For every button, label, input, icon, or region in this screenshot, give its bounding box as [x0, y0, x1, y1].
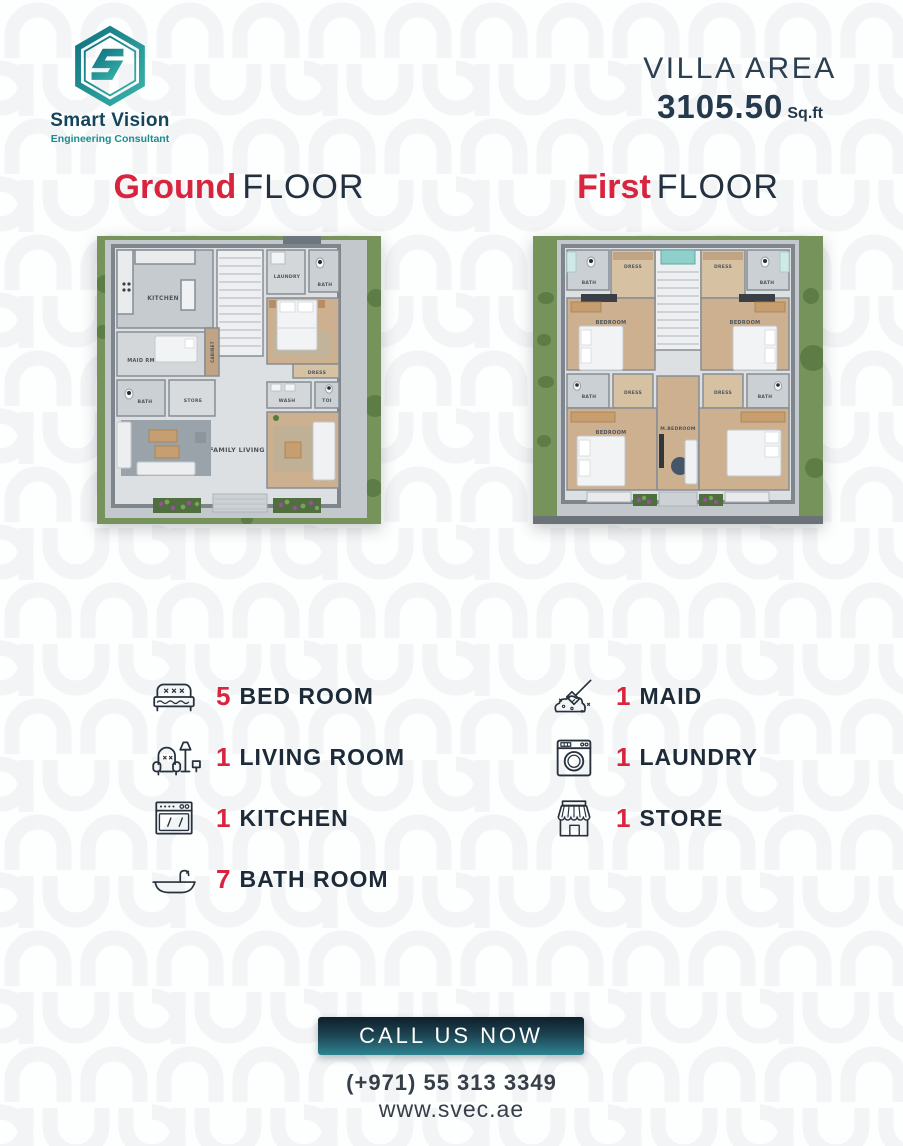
room-label-store: STORE	[184, 398, 203, 404]
ground-floor-heading-rest: FLOOR	[242, 168, 364, 206]
feature-kitchen-label: KITCHEN	[239, 805, 348, 832]
feature-laundry-label: LAUNDRY	[639, 744, 758, 771]
brand-tagline: Engineering Consultant	[40, 133, 180, 145]
phone-number[interactable]: (+971) 55 313 3349	[0, 1070, 903, 1096]
room-label-bath-tl: BATH	[582, 280, 597, 286]
room-label-master-bedroom: M.BEDROOM	[660, 426, 696, 432]
flyer-page: Smart Vision Engineering Consultant VILL…	[0, 0, 903, 1146]
room-label-dress-tl: DRESS	[624, 264, 642, 270]
feature-store-label: STORE	[639, 805, 723, 832]
bath-icon	[138, 859, 210, 901]
feature-kitchen: 1 KITCHEN	[138, 788, 468, 849]
room-label-wash: WASH	[279, 398, 296, 404]
first-floor-heading-rest: FLOOR	[657, 168, 779, 206]
feature-maid: 1 MAID	[538, 666, 868, 727]
room-label-kitchen: KITCHEN	[147, 295, 179, 302]
feature-bed-room-label: BED ROOM	[239, 683, 374, 710]
ground-floor-plan: KITCHEN LAUNDRY BATH	[97, 236, 381, 524]
feature-bed-room: 5 BED ROOM	[138, 666, 468, 727]
room-label-bath-top: BATH	[318, 282, 333, 288]
feature-bath-room-count: 7	[216, 864, 230, 895]
call-us-now-button[interactable]: CALL US NOW	[318, 1017, 584, 1055]
room-label-family-living: FAMILY LIVING	[209, 446, 265, 454]
room-label-dress-ml: DRESS	[624, 390, 642, 396]
feature-living-room-label: LIVING ROOM	[239, 744, 405, 771]
features-right-column: 1 MAID 1 LAUNDRY	[538, 666, 868, 849]
laundry-icon	[538, 736, 610, 780]
villa-area-unit: Sq.ft	[787, 105, 823, 122]
bed-icon	[138, 676, 210, 718]
feature-maid-label: MAID	[639, 683, 702, 710]
maid-icon	[538, 676, 610, 718]
feature-maid-count: 1	[616, 681, 630, 712]
first-floor-heading-accent: First	[577, 168, 651, 206]
room-label-maid: MAID RM	[127, 358, 155, 364]
brand-name: Smart Vision	[40, 110, 180, 132]
hexagon-s-logo-icon	[67, 24, 153, 108]
room-label-dress-mr: DRESS	[714, 390, 732, 396]
room-label-dress: DRESS	[308, 370, 326, 376]
room-label-laundry: LAUNDRY	[274, 274, 301, 280]
feature-store: 1 STORE	[538, 788, 868, 849]
ground-floor-heading-accent: Ground	[114, 168, 237, 206]
room-label-bedroom-bl: BEDROOM	[596, 430, 627, 436]
villa-area-value: 3105.50	[657, 88, 783, 125]
feature-kitchen-count: 1	[216, 803, 230, 834]
feature-bed-room-count: 5	[216, 681, 230, 712]
room-label-bath-ml: BATH	[582, 394, 597, 400]
feature-laundry-count: 1	[616, 742, 630, 773]
feature-bath-room-label: BATH ROOM	[239, 866, 388, 893]
feature-living-room: 1 LIVING ROOM	[138, 727, 468, 788]
ground-floor-heading: GroundFLOOR	[97, 168, 381, 212]
features-left-column: 5 BED ROOM 1 LIVING ROOM	[138, 666, 468, 910]
room-label-cabinet: CABINET	[210, 341, 215, 362]
room-label-bath-tr: BATH	[760, 280, 775, 286]
feature-store-count: 1	[616, 803, 630, 834]
villa-area-label: VILLA AREA	[610, 52, 870, 86]
villa-area-block: VILLA AREA 3105.50Sq.ft	[610, 52, 870, 126]
room-label-bedroom-tr: BEDROOM	[730, 320, 761, 326]
kitchen-icon	[138, 798, 210, 840]
feature-bath-room: 7 BATH ROOM	[138, 849, 468, 910]
room-label-bath-left: BATH	[138, 399, 153, 405]
store-icon	[538, 797, 610, 841]
feature-living-room-count: 1	[216, 742, 230, 773]
first-floor-heading: FirstFLOOR	[533, 168, 823, 212]
first-floor-plan: BATH DRESS BEDROOM DRESS BATH BEDROOM	[533, 236, 823, 524]
feature-laundry: 1 LAUNDRY	[538, 727, 868, 788]
room-label-bath-mr: BATH	[758, 394, 773, 400]
website-link[interactable]: www.svec.ae	[0, 1096, 903, 1123]
living-room-icon	[138, 737, 210, 779]
room-label-toilet: TOI	[322, 398, 332, 404]
room-label-dress-tr: DRESS	[714, 264, 732, 270]
brand-block: Smart Vision Engineering Consultant	[40, 24, 180, 145]
room-label-bedroom-tl: BEDROOM	[596, 320, 627, 326]
